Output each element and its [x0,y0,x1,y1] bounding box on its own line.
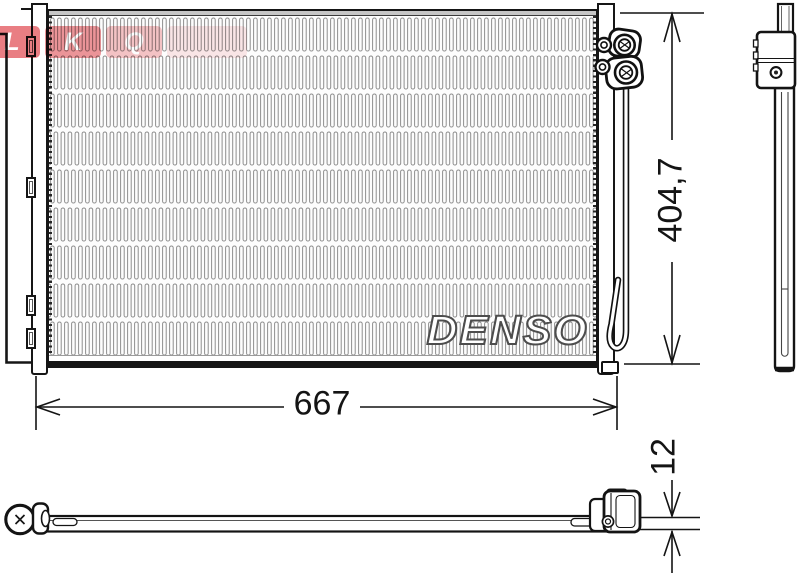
fin-serration-right [593,16,596,355]
core-bottom-plate [49,355,596,366]
mounting-clip [26,36,36,57]
denso-brand-logo: DENSO [427,308,604,352]
fin-serration-left [49,16,52,355]
right-tank-foot [601,361,619,374]
catalog-product-drawing-page: { "page": {"background": "#ffffff", "lin… [0,0,800,574]
mounting-clip [26,328,36,349]
core-fin-pattern [49,16,596,355]
width-dimension-value: 667 [294,385,351,424]
depth-dimension-value: 12 [645,438,684,476]
condenser-top-view [6,490,640,534]
mounting-clip [26,295,36,316]
height-dimension-value: 404,7 [652,157,691,242]
mounting-clip [26,177,36,198]
condenser-side-view [754,4,796,371]
